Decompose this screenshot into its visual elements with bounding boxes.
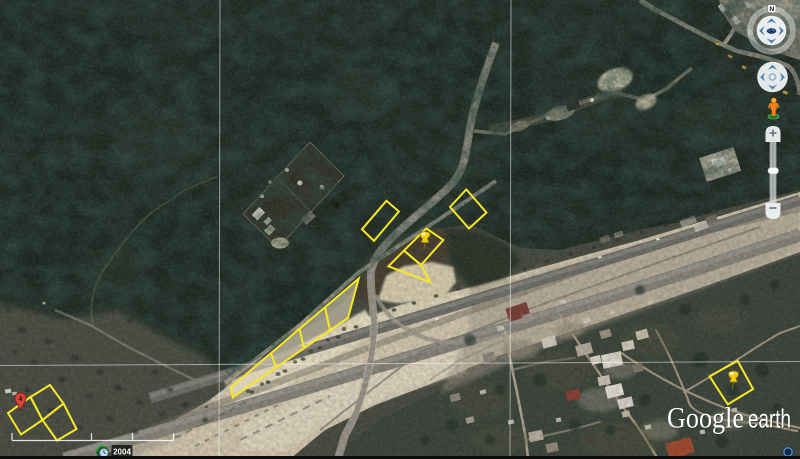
svg-text:4: 4 [19,396,23,403]
svg-text:2004: 2004 [113,448,131,457]
svg-text:Google: Google [667,402,744,435]
svg-text:earth: earth [748,404,791,434]
svg-text:N: N [769,6,774,13]
